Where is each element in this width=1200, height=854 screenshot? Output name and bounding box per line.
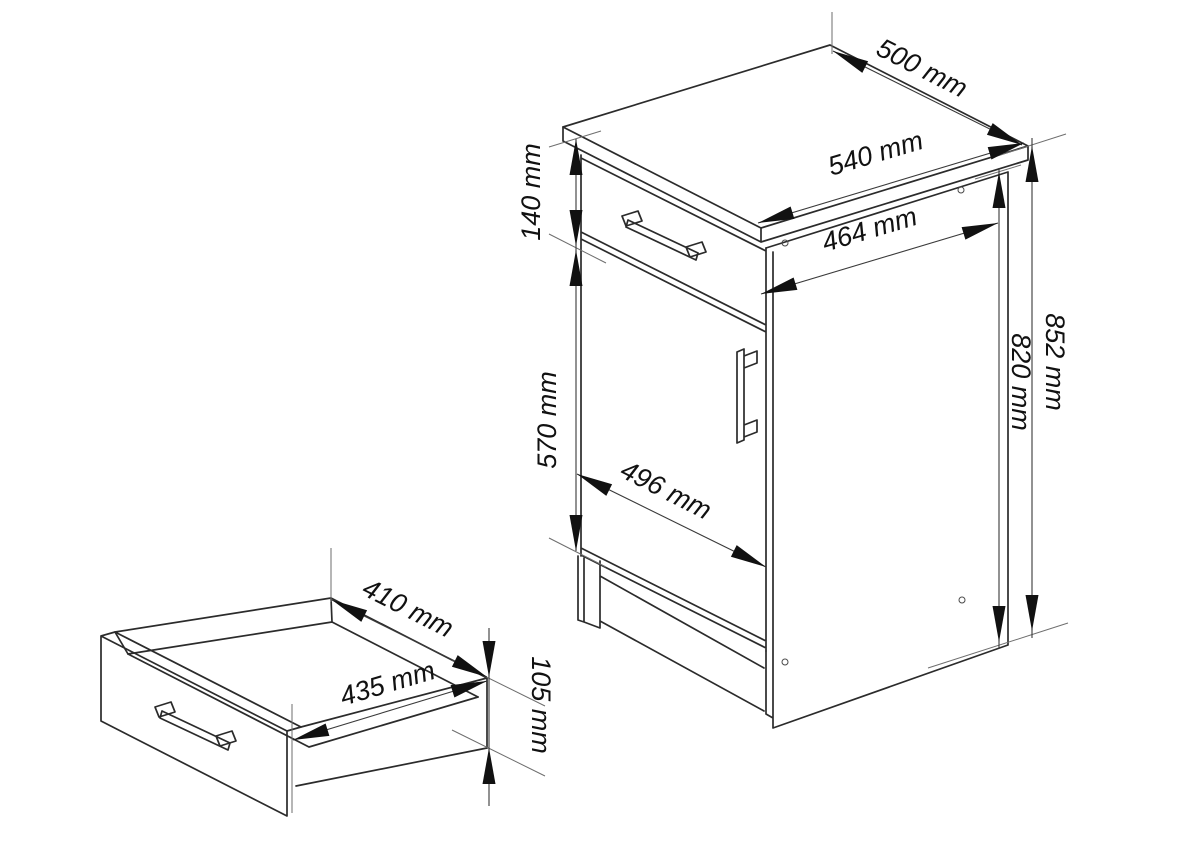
assembly-hole	[959, 597, 965, 603]
cabinet-door-handle	[737, 349, 757, 443]
drawer-left-rail	[115, 598, 332, 654]
dim-label-570mm: 570 mm	[532, 371, 562, 469]
dim-label-464mm: 464 mm	[818, 201, 920, 257]
dim-label-435mm: 435 mm	[336, 655, 438, 711]
cabinet-front-face	[581, 155, 766, 651]
assembly-hole	[782, 659, 788, 665]
dim-label-140mm: 140 mm	[516, 143, 546, 241]
dim-label-105mm: 105 mm	[526, 656, 556, 754]
dimension-labels: 500 mm 540 mm 464 mm 140 mm 570 mm 496 m…	[336, 32, 1070, 753]
cabinet-view	[563, 45, 1028, 728]
dim-label-410mm: 410 mm	[358, 572, 459, 643]
cabinet-side-panel	[766, 172, 1008, 728]
dim-label-496mm: 496 mm	[616, 454, 717, 525]
furniture-dimension-diagram: 500 mm 540 mm 464 mm 140 mm 570 mm 496 m…	[0, 0, 1200, 854]
assembly-hole	[958, 187, 964, 193]
drawer-front-panel	[101, 632, 301, 816]
dim-label-540mm: 540 mm	[824, 125, 926, 181]
dim-label-852mm: 852 mm	[1040, 313, 1070, 411]
extension-lines	[292, 12, 1068, 813]
drawer-handle	[155, 702, 236, 750]
dimension-lines	[292, 12, 1068, 813]
dim-label-820mm: 820 mm	[1006, 333, 1036, 431]
cabinet-drawer-handle	[622, 211, 706, 260]
drawing-canvas: 500 mm 540 mm 464 mm 140 mm 570 mm 496 m…	[0, 0, 1200, 854]
